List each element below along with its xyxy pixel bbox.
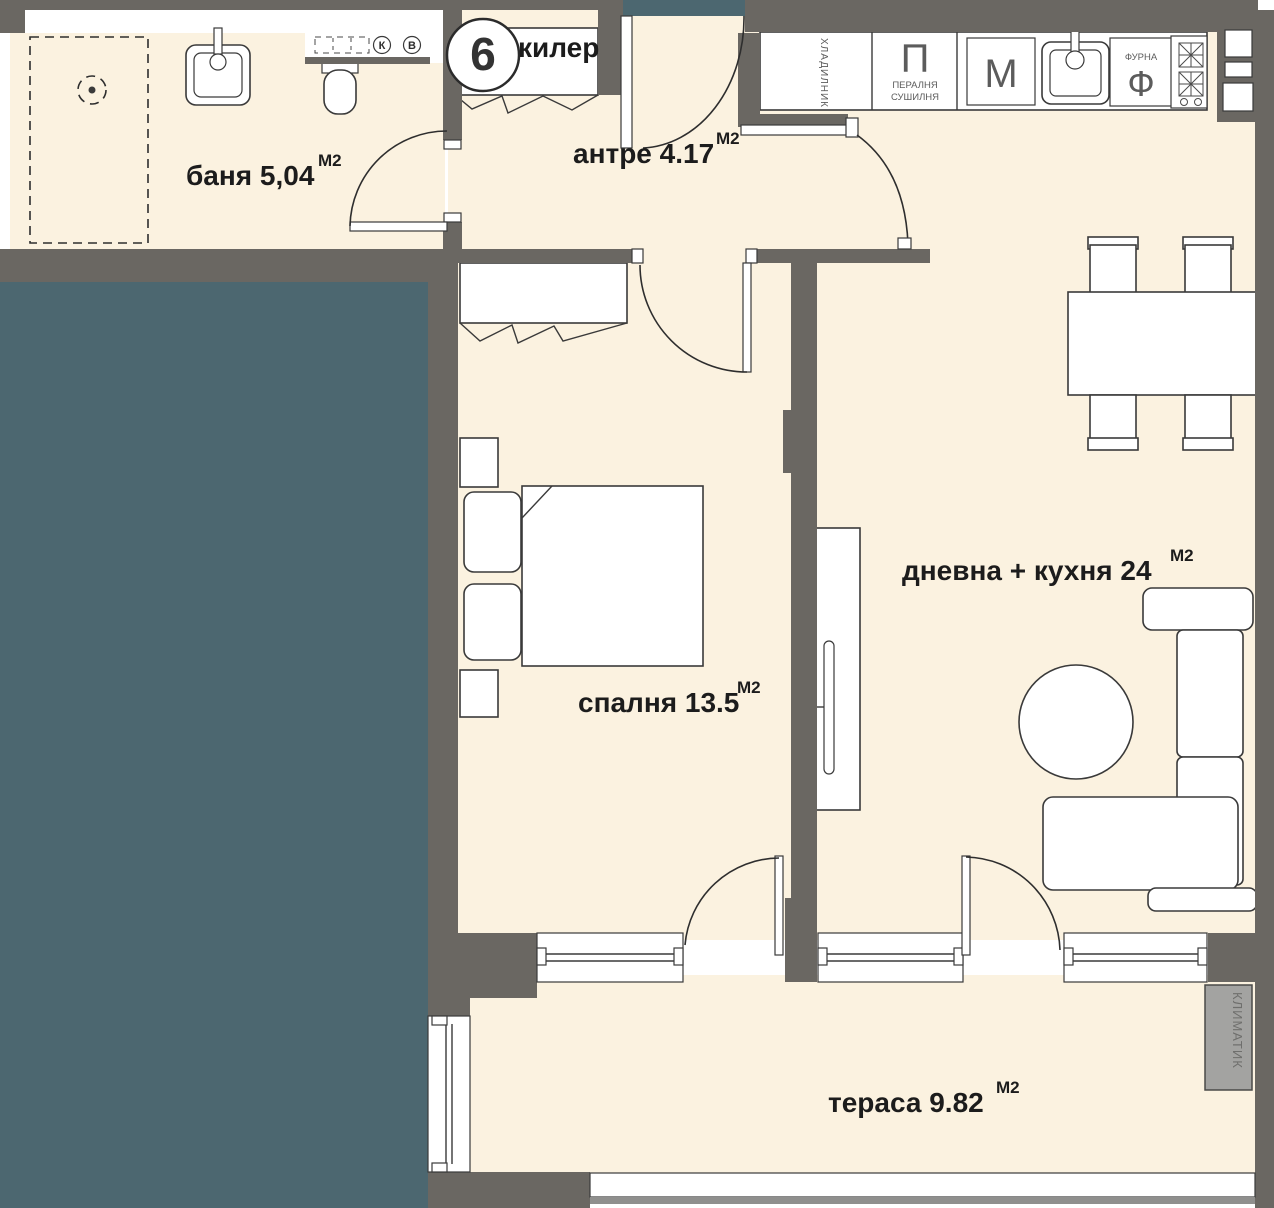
entrance-badge: 9 <box>447 19 519 91</box>
washer-symbol: П <box>901 37 930 81</box>
wall-bedroom-left <box>428 282 458 933</box>
ac-label: КЛИМАТИК <box>1230 992 1245 1069</box>
railing-line <box>590 1197 1255 1204</box>
wall-bath-bottom <box>0 249 458 282</box>
wall-top-right <box>745 0 1258 15</box>
terrace-door-1-leaf <box>775 856 783 955</box>
chair-4-back <box>1183 438 1233 450</box>
floor-plan-canvas: К В ХЛАДИЛНИК П ПЕРАЛНЯ СУШИЛНЯ М ФУРНА … <box>0 0 1274 1208</box>
chair-2 <box>1185 245 1231 293</box>
chair-4 <box>1185 395 1231 443</box>
living-window-2 <box>1064 933 1207 982</box>
room-label-terasa-sup: М2 <box>996 1078 1020 1097</box>
wall-bedroom-top-right <box>746 249 930 263</box>
terrace-window <box>428 1016 470 1172</box>
pillow-2 <box>464 584 521 660</box>
railing-band <box>590 1173 1255 1197</box>
nightstand-2 <box>460 670 498 717</box>
bath-faucet-stem <box>214 28 222 54</box>
dining-table <box>1068 292 1257 395</box>
kitchen-counter: ХЛАДИЛНИК П ПЕРАЛНЯ СУШИЛНЯ М ФУРНА Ф <box>760 26 1207 110</box>
room-label-spalnya-sup: М2 <box>737 678 761 697</box>
room-label-spalnya: спалня 13.5 <box>578 687 739 718</box>
wall-kiler-right <box>598 10 623 95</box>
corridor-strip <box>623 0 745 16</box>
chair-3 <box>1090 395 1136 443</box>
wall-partition <box>791 263 817 933</box>
bath-faucet <box>210 54 226 70</box>
shaft-k-label: К <box>379 40 386 52</box>
washer-line2: СУШИЛНЯ <box>891 92 939 103</box>
room-label-banya: баня 5,04 <box>186 160 315 191</box>
wall-partition-foot <box>785 898 817 982</box>
terrace-floor <box>463 975 1258 1175</box>
nightstand-1 <box>460 438 498 487</box>
room-label-antre-sup: М2 <box>716 129 740 148</box>
niche-ledge <box>305 57 430 64</box>
wall-terrace-left-lower <box>428 1172 590 1208</box>
opening-frame <box>741 125 848 135</box>
bedroom-door-leaf <box>743 263 751 372</box>
wall-kitchen-top <box>745 15 1217 32</box>
bedroom-window <box>537 933 683 982</box>
entrance-door-leaf <box>621 16 632 148</box>
room-label-antre: антре 4.17 <box>573 138 714 169</box>
hob <box>1171 36 1207 108</box>
wall-bottom-step <box>460 982 537 998</box>
room-label-dnevna-sup: М2 <box>1170 546 1194 565</box>
entrance-number: 9 <box>470 28 496 80</box>
wall-partition-column <box>783 410 817 473</box>
chair-3-back <box>1088 438 1138 450</box>
sofa-armrest-bottom <box>1148 888 1257 911</box>
oven-symbol: Ф <box>1127 63 1154 104</box>
sofa-seat-1 <box>1177 630 1243 757</box>
wardrobe <box>460 263 627 323</box>
adjacent-area <box>0 282 428 1208</box>
toilet-bowl <box>324 70 356 114</box>
chair-1 <box>1090 245 1136 293</box>
terrace-door-2-leaf <box>962 856 970 955</box>
wall-corner-left <box>0 10 25 33</box>
wall-right-outer <box>1255 10 1274 1208</box>
shaft-boxes <box>1223 30 1253 111</box>
tv-cabinet <box>815 528 860 810</box>
wall-bottom-right <box>1208 933 1255 982</box>
wall-bottom-left <box>428 933 537 982</box>
burner-1 <box>1179 43 1203 67</box>
terrace-railing <box>590 1173 1255 1204</box>
living-window-1 <box>818 933 963 982</box>
tv <box>824 641 834 774</box>
dishwasher-symbol: М <box>984 52 1017 96</box>
wall-top-left <box>0 0 623 10</box>
sofa-chaise <box>1043 797 1238 890</box>
floor-plan: К В ХЛАДИЛНИК П ПЕРАЛНЯ СУШИЛНЯ М ФУРНА … <box>0 0 1274 1208</box>
ac-unit: КЛИМАТИК <box>1205 985 1252 1090</box>
room-label-banya-sup: М2 <box>318 151 342 170</box>
shower-head-dot <box>89 87 96 94</box>
coffee-table <box>1019 665 1133 779</box>
room-label-kiler: килер <box>518 32 599 63</box>
bathroom-door-leaf <box>350 222 447 231</box>
pillow-1 <box>464 492 521 572</box>
room-label-dnevna: дневна + кухня 24 <box>902 555 1152 586</box>
bed <box>522 486 703 666</box>
wall-bedroom-top-left <box>428 249 638 263</box>
shaft-v-label: В <box>408 40 416 52</box>
wall-terrace-left-upper <box>428 982 470 1016</box>
fridge-label: ХЛАДИЛНИК <box>818 38 829 108</box>
sofa-armrest-top <box>1143 588 1253 630</box>
room-label-terasa: тераса 9.82 <box>828 1087 984 1118</box>
washer-line1: ПЕРАЛНЯ <box>892 80 938 91</box>
kitchen-faucet <box>1066 51 1084 69</box>
burner-2 <box>1179 72 1203 96</box>
oven-label: ФУРНА <box>1125 52 1158 63</box>
